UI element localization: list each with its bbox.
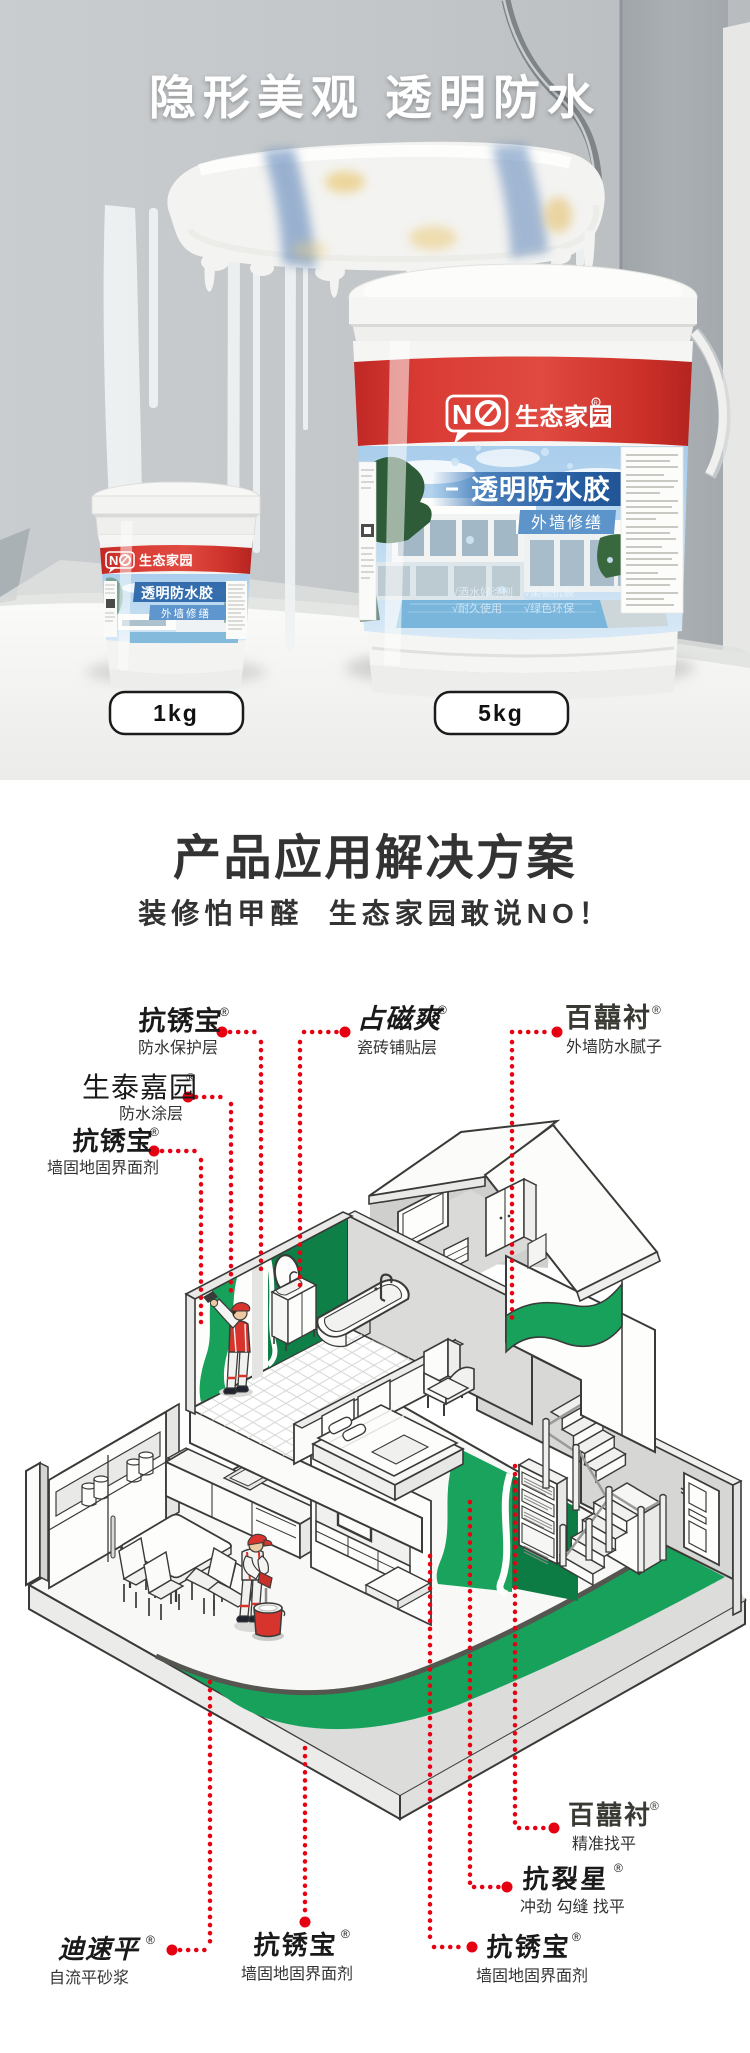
svg-text:®: ® [146,1933,155,1947]
svg-text:抗锈宝: 抗锈宝 [72,1126,155,1156]
svg-text:自流平砂浆: 自流平砂浆 [49,1969,129,1987]
svg-text:®: ® [652,1003,661,1017]
svg-text:墙固地固界面剂: 墙固地固界面剂 [476,1967,588,1985]
svg-text:透明防水胶: 透明防水胶 [471,474,611,505]
svg-text:外墙防水腻子: 外墙防水腻子 [566,1038,662,1056]
svg-text:墙固地固界面剂: 墙固地固界面剂 [241,1965,353,1983]
svg-text:精准找平: 精准找平 [572,1835,636,1853]
svg-text:隐形美观 透明防水: 隐形美观 透明防水 [149,71,601,124]
svg-text:抗裂星: 抗裂星 [522,1864,611,1894]
svg-text:墙固地固界面剂: 墙固地固界面剂 [47,1159,159,1177]
svg-text:N: N [109,553,118,568]
svg-text:®: ® [220,1005,229,1019]
svg-text:®: ® [341,1927,350,1941]
svg-text:抗锈宝: 抗锈宝 [138,1005,224,1036]
svg-text:生泰嘉园: 生泰嘉园 [82,1072,198,1104]
svg-text:防水保护层: 防水保护层 [138,1039,218,1057]
svg-text:√酒水好涂刷 √柔韧抗裂: √酒水好涂刷 √柔韧抗裂 [452,585,574,599]
svg-text:百囍衬: 百囍衬 [565,1003,652,1033]
svg-text:防水涂层: 防水涂层 [119,1105,183,1123]
svg-text:®: ® [186,1070,195,1084]
svg-text:占磁爽: 占磁爽 [357,1004,444,1034]
svg-text:®: ® [438,1003,447,1017]
svg-text:生态家园: 生态家园 [515,403,613,431]
svg-text:瓷砖铺贴层: 瓷砖铺贴层 [357,1039,437,1057]
svg-text:外墙修缮: 外墙修缮 [531,514,603,532]
svg-text:√耐久使用 √绿色环保: √耐久使用 √绿色环保 [452,601,574,615]
svg-text:®: ® [150,1125,159,1139]
svg-text:5kg: 5kg [478,700,524,726]
svg-text:1kg: 1kg [153,700,199,726]
svg-text:N: N [452,399,472,430]
svg-text:®: ® [650,1799,659,1813]
svg-text:百囍衬: 百囍衬 [568,1800,652,1830]
svg-text:R: R [594,401,599,407]
svg-text:®: ® [614,1861,623,1875]
svg-text:迪速平: 迪速平 [58,1934,141,1964]
svg-text:透明防水胶: 透明防水胶 [141,585,214,601]
svg-text:®: ® [572,1930,581,1944]
svg-text:生态家园: 生态家园 [139,553,193,568]
svg-text:抗锈宝: 抗锈宝 [486,1932,572,1962]
svg-text:冲劲 勾缝 找平: 冲劲 勾缝 找平 [520,1898,625,1916]
svg-text:外墙修缮: 外墙修缮 [161,607,211,620]
svg-text:抗锈宝: 抗锈宝 [253,1930,339,1960]
